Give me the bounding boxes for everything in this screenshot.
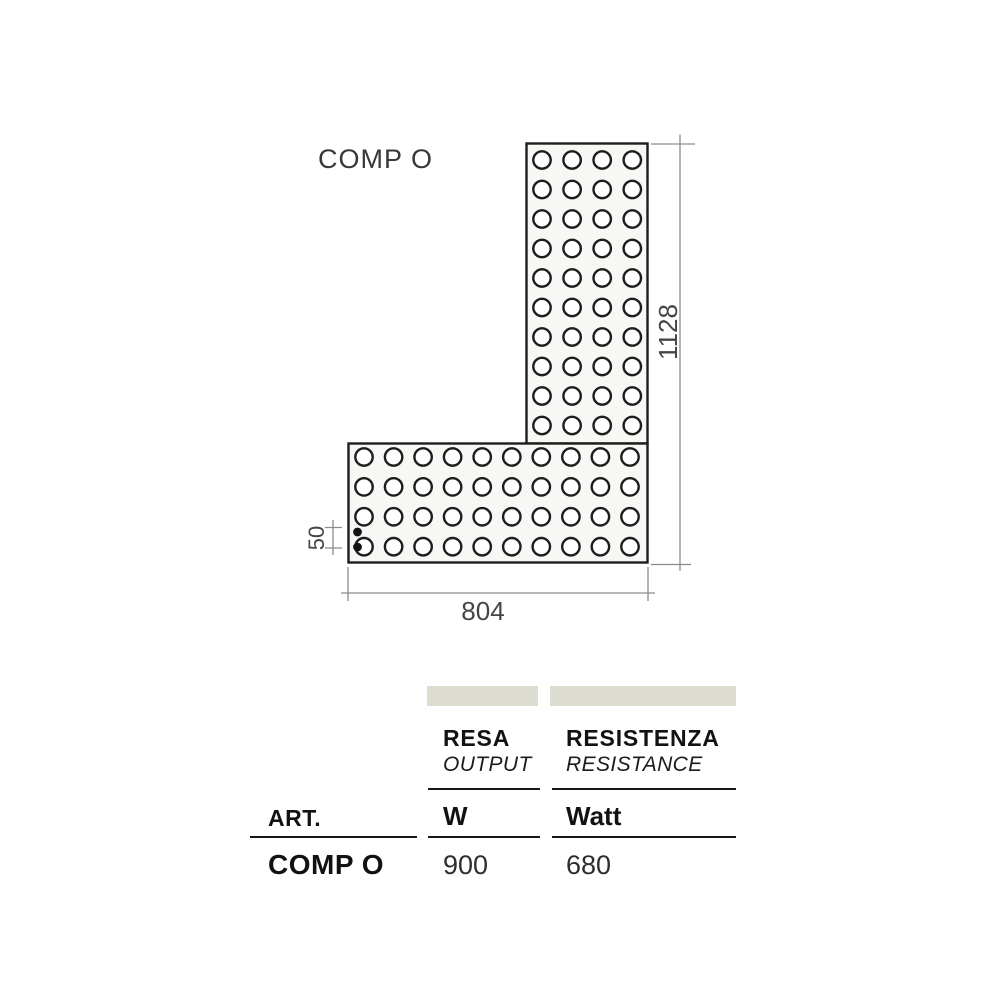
radiator-hole [503,508,520,525]
divider-resa-bottom [428,836,540,838]
drawing-title: COMP O [318,144,433,174]
radiator-hole [563,240,580,257]
radiator-hole [624,417,641,434]
radiator-hole [444,478,461,495]
radiator-hole [624,181,641,198]
radiator-hole [563,299,580,316]
radiator-hole [562,478,579,495]
dimension-width-label: 804 [461,596,504,626]
radiator-hole [621,448,638,465]
radiator-hole [533,151,550,168]
radiator-hole [563,151,580,168]
technical-drawing: COMP O 1128 804 50 [0,0,990,660]
radiator-hole [414,478,431,495]
radiator-hole [563,328,580,345]
divider-resa-top [428,788,540,790]
radiator-hole [624,328,641,345]
radiator-hole [594,181,611,198]
column-subheader-output: OUTPUT [443,754,532,775]
radiator-hole [444,538,461,555]
radiator-hole [563,417,580,434]
divider-resistenza-top [552,788,736,790]
radiator-hole [563,269,580,286]
radiator-hole [594,269,611,286]
radiator-hole [563,210,580,227]
divider-art-bottom [250,836,417,838]
radiator-hole [414,538,431,555]
radiator-hole [474,538,491,555]
column-subheader-resistance: RESISTANCE [566,754,703,775]
table-row-article: COMP O [268,851,384,879]
radiator-hole [414,448,431,465]
radiator-hole [385,538,402,555]
radiator-hole [533,387,550,404]
radiator-hole [533,328,550,345]
dimension-height: 1128 [651,135,695,572]
radiator-hole [624,240,641,257]
radiator-hole [444,448,461,465]
column-header-art: ART. [268,807,321,830]
radiator-hole [592,538,609,555]
radiator-hole [563,181,580,198]
radiator-hole [592,448,609,465]
radiator-hole [474,448,491,465]
radiator-hole [621,478,638,495]
radiator-hole [594,210,611,227]
divider-resistenza-bottom [552,836,736,838]
datasheet-page: COMP O 1128 804 50 [0,0,990,990]
radiator-hole [474,508,491,525]
radiator-hole [592,478,609,495]
unit-label-w: W [443,803,468,829]
radiator-hole [533,538,550,555]
radiator-hole [474,478,491,495]
radiator-hole [533,210,550,227]
radiator-hole [385,478,402,495]
radiator-hole [414,508,431,525]
radiator-hole [355,508,372,525]
radiator-hole [594,387,611,404]
table-row-resa-value: 900 [443,852,488,879]
radiator-hole [562,508,579,525]
radiator-hole [624,210,641,227]
radiator-hole [533,508,550,525]
dimension-inlet-spacing: 50 [304,520,342,555]
radiator-hole [533,448,550,465]
radiator-hole [503,478,520,495]
radiator-hole [624,151,641,168]
radiator-hole [563,387,580,404]
radiator-hole [594,417,611,434]
radiator-hole [533,417,550,434]
radiator-hole [621,538,638,555]
unit-label-watt: Watt [566,803,621,829]
radiator-hole [592,508,609,525]
radiator-hole [533,269,550,286]
radiator-hole [533,358,550,375]
dimension-inlet-label: 50 [304,526,329,550]
radiator-hole [355,448,372,465]
radiator-hole [503,448,520,465]
column-header-resa: RESA [443,727,510,750]
radiator-hole [594,299,611,316]
radiator-hole [533,240,550,257]
radiator-hole [563,358,580,375]
radiator-hole [533,299,550,316]
dimension-width: 804 [341,567,655,626]
radiator-hole [624,299,641,316]
radiator-hole [385,508,402,525]
resistenza-header-bar [550,686,736,706]
radiator-hole [621,508,638,525]
radiator-hole [594,358,611,375]
radiator-hole [624,269,641,286]
radiator-hole [385,448,402,465]
radiator-hole [624,387,641,404]
connection-dot-bottom [353,543,362,552]
radiator-hole [594,240,611,257]
radiator-hole [594,328,611,345]
radiator-hole [444,508,461,525]
radiator-hole [562,448,579,465]
radiator-hole [533,181,550,198]
radiator-hole [503,538,520,555]
dimension-height-label: 1128 [653,304,683,360]
radiator-hole [594,151,611,168]
radiator-body [349,144,648,563]
radiator-hole [624,358,641,375]
column-header-resistenza: RESISTENZA [566,727,720,750]
resa-header-bar [427,686,538,706]
radiator-hole [533,478,550,495]
radiator-hole [355,478,372,495]
radiator-hole [562,538,579,555]
connection-dot-top [353,528,362,537]
table-row-resistenza-value: 680 [566,852,611,879]
